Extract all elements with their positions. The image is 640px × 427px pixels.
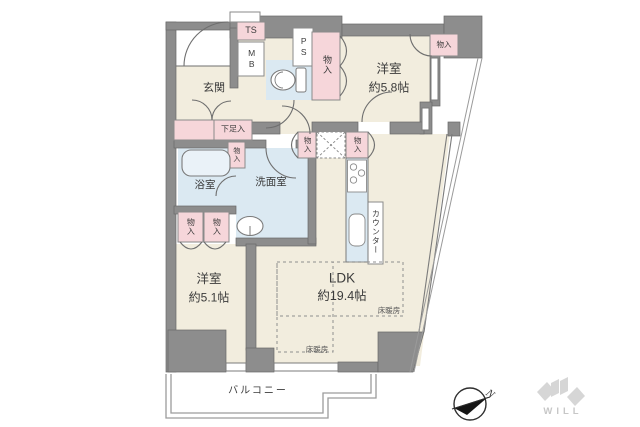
window-ldk-balcony <box>274 363 338 371</box>
label-bedroom2: 洋室 <box>196 273 221 287</box>
wall-bath-top <box>174 140 266 148</box>
wall-bedroom2-bottom <box>168 330 226 372</box>
kitchen-counter <box>346 158 368 262</box>
label-bedroom1: 洋室 <box>376 63 401 77</box>
label-balcony: バルコニー <box>228 386 288 397</box>
window-bedroom2 <box>226 363 246 371</box>
label-shoe-box: 下足入 <box>221 126 245 135</box>
wall-bedroom2-ldk <box>246 244 256 350</box>
will-logo-icon <box>537 377 585 406</box>
wall-top-bedroom1 <box>342 24 444 36</box>
kitchen-sink-icon <box>349 214 365 246</box>
stove-icon <box>348 160 367 192</box>
label-ts: TS <box>245 26 257 36</box>
will-logo-text: WILL <box>543 407 582 417</box>
compass-icon <box>452 388 490 420</box>
entry-porch <box>174 28 230 66</box>
wall-bottom-step <box>246 348 274 372</box>
floor-plan-drawing <box>0 0 640 427</box>
shoe-cabinet-left <box>174 120 214 140</box>
label-closet-topright: 物入 <box>437 41 452 49</box>
label-ps: PS <box>298 36 307 58</box>
label-bedroom1-size: 約5.8帖 <box>369 81 410 94</box>
wall-hall-ldk-c <box>390 122 424 134</box>
label-closet-bedroom2-2: 物入 <box>212 218 221 236</box>
window-bedroom1 <box>431 58 438 100</box>
wall-left <box>166 22 176 372</box>
label-mb: MB <box>246 48 255 70</box>
entry-door-box <box>230 12 260 22</box>
label-bathroom: 浴室 <box>195 180 216 192</box>
toilet-tank <box>296 68 306 92</box>
wall-top-porch <box>166 22 232 30</box>
label-ldk-size: 約19.4帖 <box>317 290 366 304</box>
label-closet-tall: 物入 <box>321 55 331 75</box>
label-ldk: LDK <box>329 272 355 287</box>
bathtub-icon <box>182 150 230 176</box>
dashed-cross-box <box>317 132 345 158</box>
label-closet-bedroom2-1: 物入 <box>186 218 195 236</box>
label-genkan: 玄関 <box>203 82 225 94</box>
room-bedroom1 <box>342 36 430 122</box>
floor-plan: 玄関 TS MB PS 物入 洋室 約5.8帖 物入 下足入 物入 浴室 洗面室… <box>0 0 640 427</box>
label-closet-kitchen-top: 物入 <box>353 137 361 154</box>
wall-bottom-bar <box>338 362 378 372</box>
label-closet-washroom: 物入 <box>232 147 240 163</box>
label-washroom: 洗面室 <box>255 177 287 189</box>
window-jog <box>422 108 429 130</box>
label-closet-kitchen-left: 物入 <box>303 137 311 154</box>
label-floor-heating-1: 床暖房 <box>378 307 401 315</box>
label-counter: カウンター <box>371 210 380 255</box>
label-floor-heating-2: 床暖房 <box>306 346 329 354</box>
wall-ldk-corner <box>448 122 460 136</box>
label-bedroom2-size: 約5.1帖 <box>189 291 230 304</box>
